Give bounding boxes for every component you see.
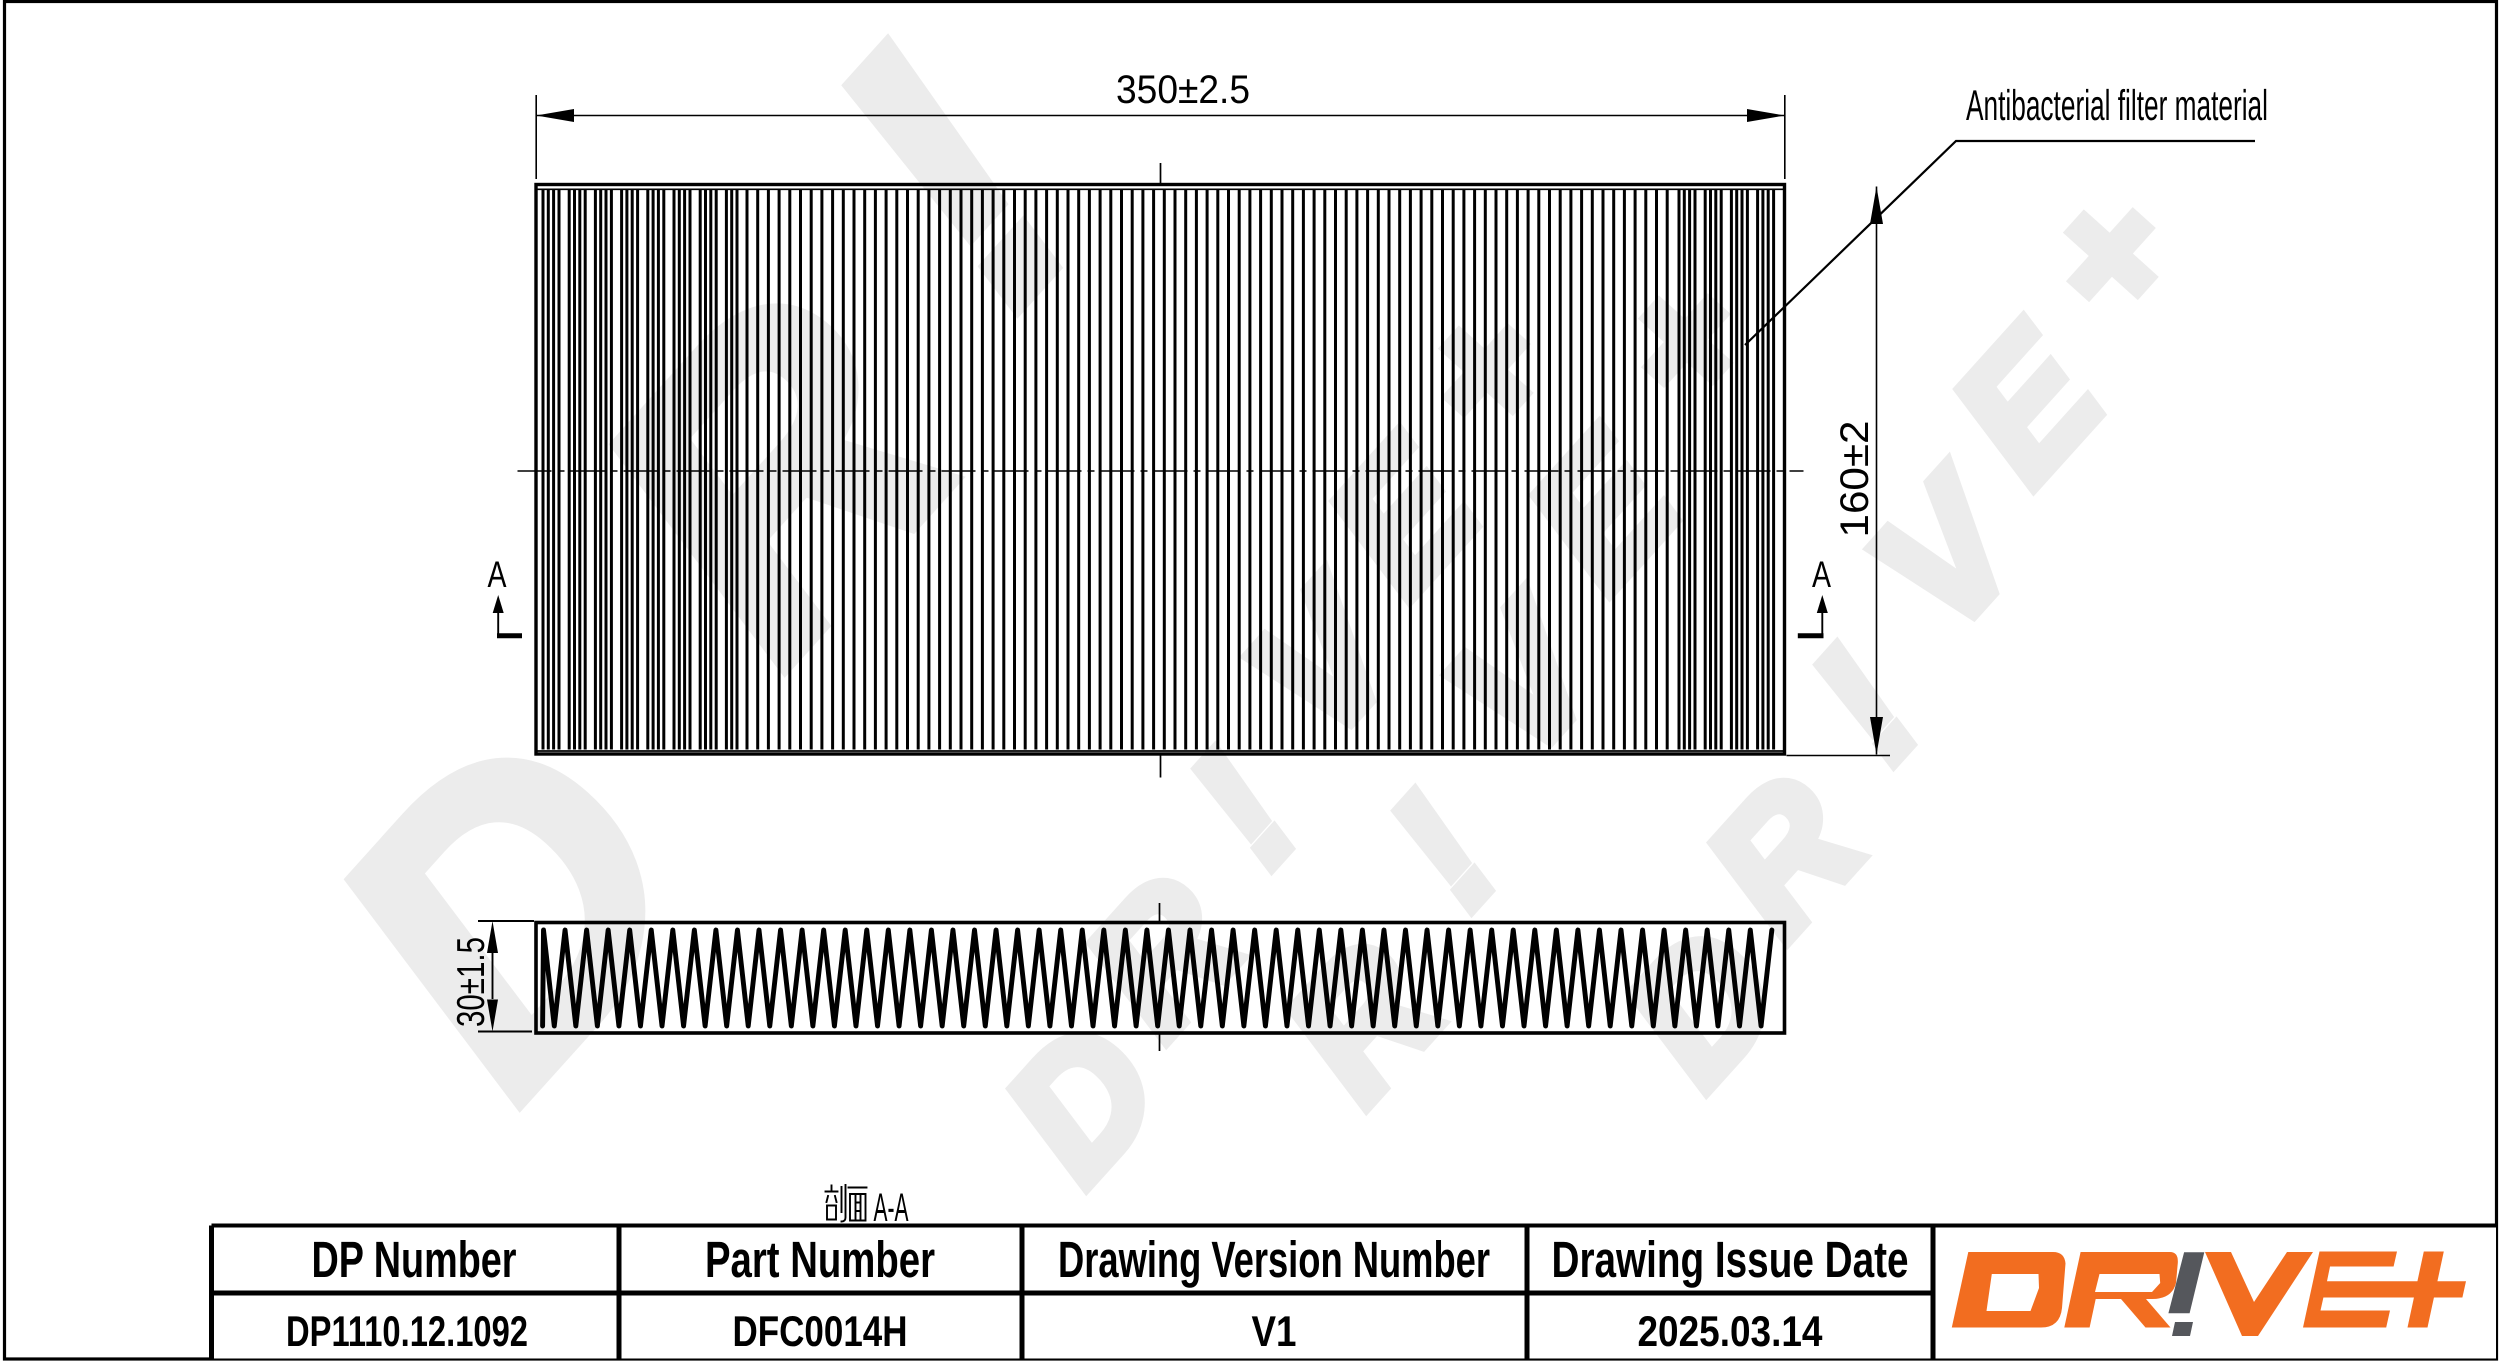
- svg-text:2025.03.14: 2025.03.14: [1638, 1308, 1823, 1356]
- svg-text:160±2: 160±2: [1833, 421, 1877, 538]
- svg-text:DFC0014H: DFC0014H: [733, 1308, 908, 1356]
- svg-text:A-A: A-A: [874, 1186, 909, 1230]
- svg-text:30±1.5: 30±1.5: [450, 937, 493, 1027]
- svg-text:Antibacterial filter material: Antibacterial filter material: [1966, 82, 2268, 130]
- svg-text:DP1110.12.1092: DP1110.12.1092: [286, 1308, 528, 1356]
- svg-text:350±2.5: 350±2.5: [1116, 68, 1250, 112]
- svg-text:Part Number: Part Number: [705, 1231, 935, 1288]
- svg-text:A: A: [1812, 554, 1831, 595]
- svg-text:DP Number: DP Number: [312, 1231, 517, 1288]
- svg-text:V1: V1: [1252, 1308, 1297, 1356]
- svg-text:Drawing Issue Date: Drawing Issue Date: [1552, 1231, 1909, 1288]
- svg-text:A: A: [488, 554, 507, 595]
- svg-text:Drawing Version Number: Drawing Version Number: [1058, 1231, 1490, 1288]
